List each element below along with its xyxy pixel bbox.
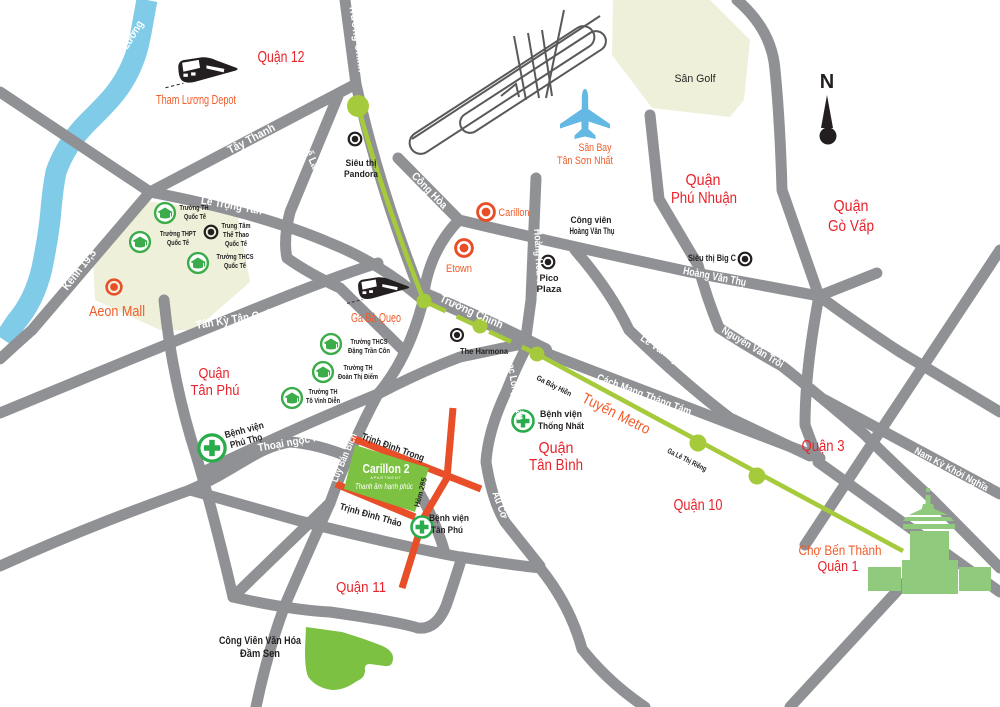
svg-text:Công viên: Công viên	[571, 215, 612, 225]
svg-text:Quốc Tế: Quốc Tế	[184, 212, 207, 221]
svg-text:Carillon 2: Carillon 2	[363, 462, 410, 476]
svg-text:Phú Nhuận: Phú Nhuận	[671, 190, 737, 207]
svg-text:The Harmona: The Harmona	[460, 346, 508, 356]
svg-text:Trường TH: Trường TH	[180, 203, 209, 212]
svg-text:Trường TH: Trường TH	[309, 387, 338, 396]
svg-text:Quận 3: Quận 3	[802, 438, 845, 455]
svg-text:Quốc Tế: Quốc Tế	[167, 238, 190, 247]
svg-text:Quận 11: Quận 11	[336, 579, 386, 596]
svg-text:Quận 12: Quận 12	[258, 49, 305, 66]
svg-text:Aeon Mall: Aeon Mall	[89, 304, 145, 320]
svg-text:Carillon: Carillon	[499, 207, 530, 219]
svg-text:Trung Tâm: Trung Tâm	[222, 221, 251, 230]
svg-text:Pico: Pico	[540, 273, 559, 284]
svg-text:Thể Thao: Thể Thao	[223, 230, 249, 239]
svg-text:APARTMENT: APARTMENT	[370, 475, 402, 480]
svg-text:Trường TH: Trường TH	[344, 363, 373, 372]
svg-text:Siêu thị Big C: Siêu thị Big C	[688, 253, 736, 263]
svg-text:N: N	[820, 71, 834, 93]
svg-text:Plaza: Plaza	[537, 284, 563, 295]
svg-text:Đầm Sen: Đầm Sen	[240, 648, 280, 660]
svg-text:Sân Golf: Sân Golf	[675, 73, 717, 85]
svg-text:Quận: Quận	[834, 198, 869, 215]
svg-text:Trường THPT: Trường THPT	[160, 229, 196, 238]
svg-text:Tân Phú: Tân Phú	[191, 382, 240, 399]
svg-text:Quận 10: Quận 10	[674, 497, 723, 514]
svg-text:Quận: Quận	[199, 365, 230, 382]
svg-text:Bệnh viện: Bệnh viện	[429, 513, 469, 524]
svg-text:Chợ Bến Thành: Chợ Bến Thành	[799, 542, 882, 558]
svg-text:Thống Nhất: Thống Nhất	[538, 421, 585, 432]
svg-text:Bệnh viện: Bệnh viện	[540, 409, 582, 420]
svg-text:Tân Sơn Nhất: Tân Sơn Nhất	[557, 155, 613, 167]
svg-text:Thanh âm hạnh phúc: Thanh âm hạnh phúc	[355, 481, 414, 491]
svg-text:Trường THCS: Trường THCS	[351, 337, 388, 346]
svg-text:Đặng Trần Côn: Đặng Trần Côn	[348, 346, 390, 355]
svg-text:Sân Bay: Sân Bay	[579, 142, 612, 154]
svg-text:Hoàng Văn Thụ: Hoàng Văn Thụ	[570, 226, 615, 236]
svg-text:Etown: Etown	[446, 263, 472, 275]
svg-text:Quận: Quận	[539, 440, 574, 457]
svg-text:Quận 1: Quận 1	[818, 558, 859, 575]
svg-text:Quốc Tế: Quốc Tế	[224, 261, 247, 270]
svg-text:Ga Bà Quẹo: Ga Bà Quẹo	[351, 311, 401, 325]
svg-text:Quốc Tế: Quốc Tế	[225, 239, 248, 248]
svg-text:Gò Vấp: Gò Vấp	[828, 218, 874, 235]
svg-text:Tân Phú: Tân Phú	[431, 525, 463, 536]
svg-text:Tô Vinh Diễn: Tô Vinh Diễn	[306, 396, 340, 405]
svg-text:Đoàn Thị Điểm: Đoàn Thị Điểm	[338, 372, 378, 381]
svg-text:Công Viên Văn Hóa: Công Viên Văn Hóa	[219, 635, 302, 647]
svg-text:Tân Bình: Tân Bình	[529, 457, 583, 474]
svg-text:Quận: Quận	[686, 172, 721, 189]
svg-text:Siêu thị: Siêu thị	[346, 158, 377, 168]
svg-text:Trường THCS: Trường THCS	[217, 252, 254, 261]
svg-text:Tham Lương Depot: Tham Lương Depot	[156, 93, 236, 107]
svg-text:Pandora: Pandora	[344, 169, 379, 179]
